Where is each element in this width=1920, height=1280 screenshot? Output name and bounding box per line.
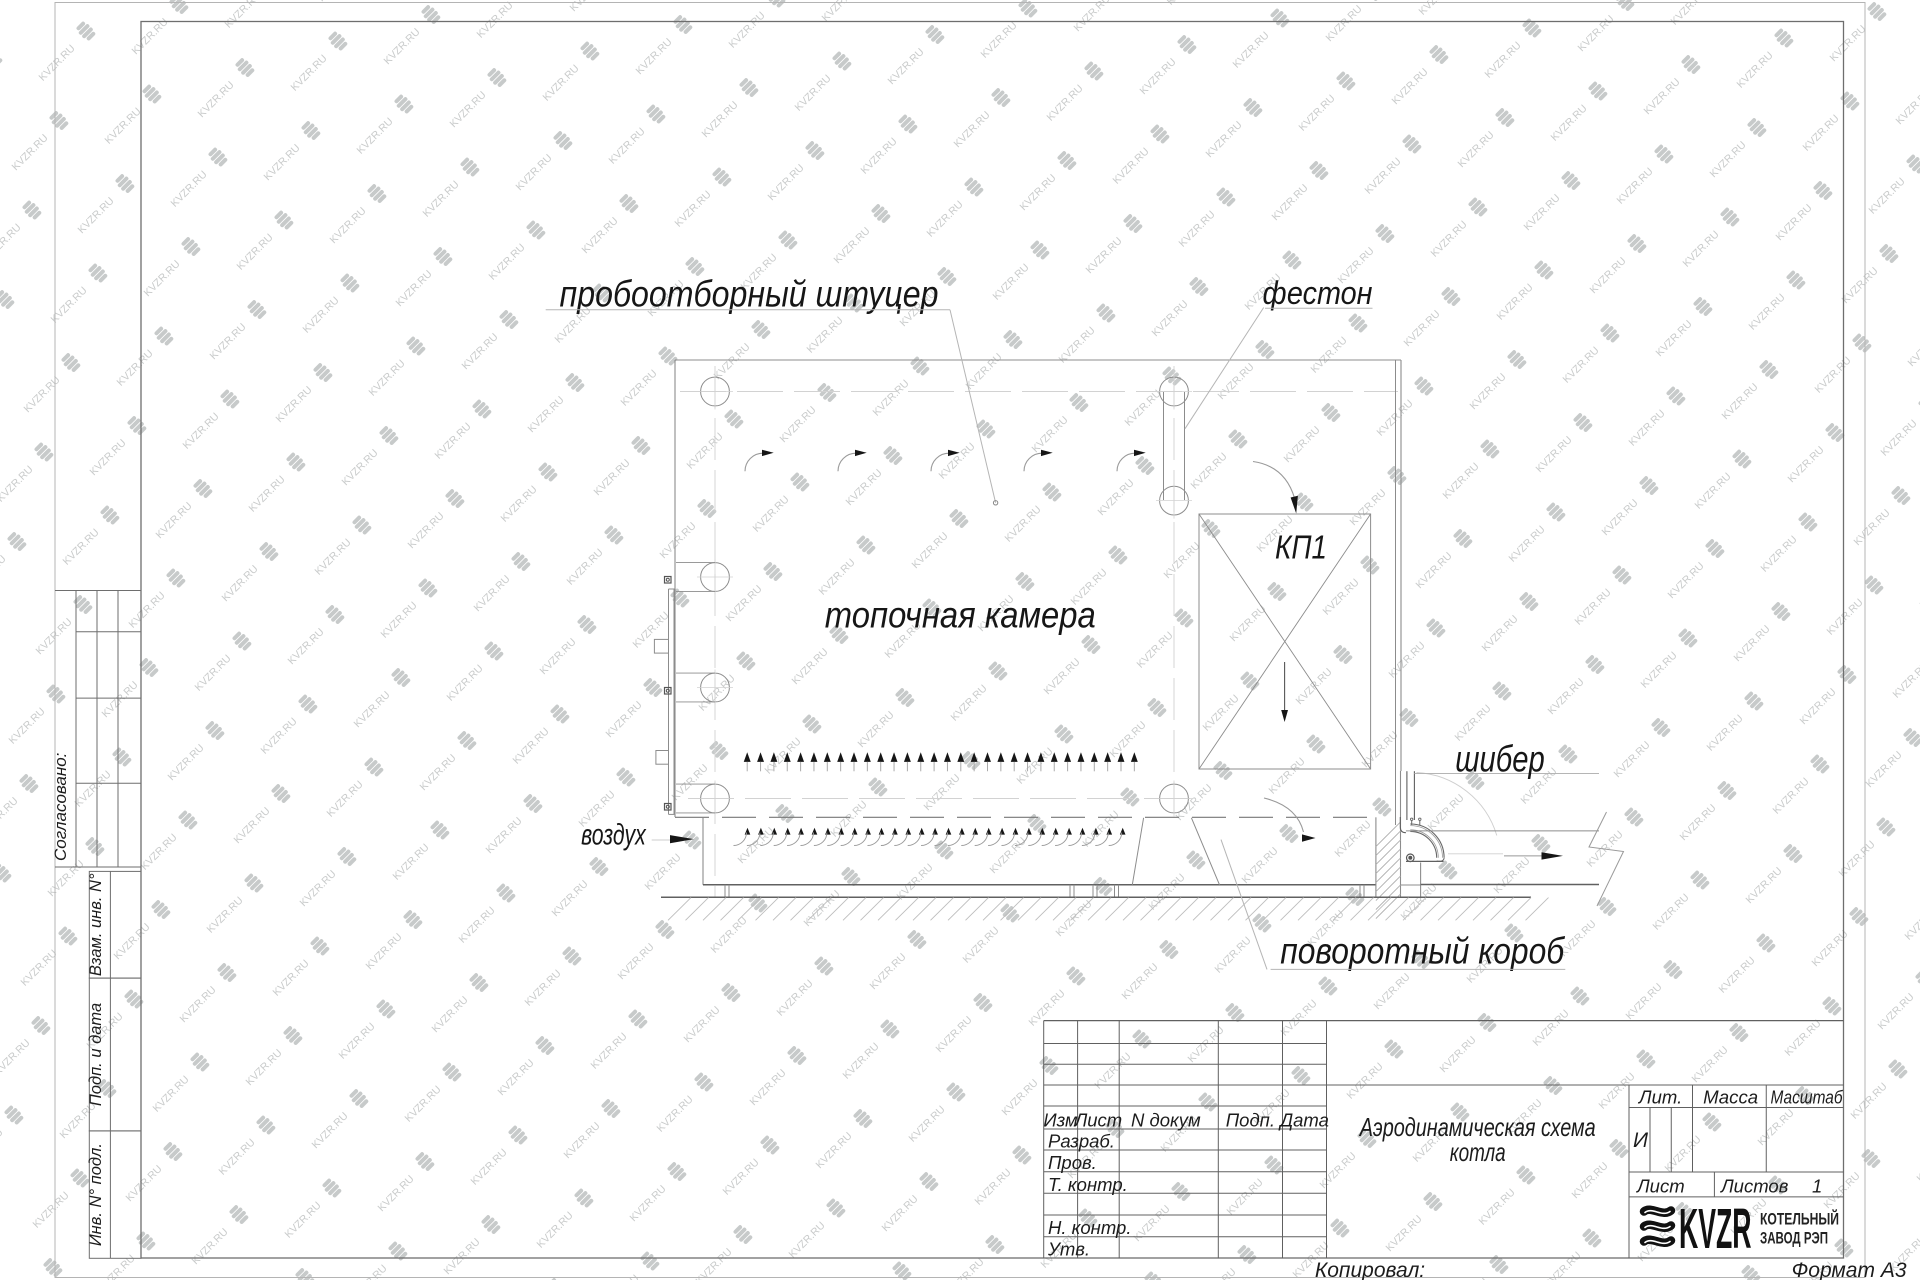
svg-text:Инв. N° подл.: Инв. N° подл. — [87, 1143, 105, 1246]
svg-text:воздух: воздух — [581, 818, 646, 851]
svg-text:Дата: Дата — [1278, 1110, 1329, 1131]
svg-text:Разраб.: Разраб. — [1048, 1131, 1115, 1152]
svg-text:И: И — [1633, 1129, 1649, 1152]
svg-text:Утв.: Утв. — [1047, 1239, 1090, 1260]
svg-text:1: 1 — [1812, 1176, 1822, 1197]
svg-text:шибер: шибер — [1455, 738, 1544, 780]
svg-text:фестон: фестон — [1263, 275, 1373, 311]
svg-text:котла: котла — [1450, 1137, 1506, 1167]
svg-text:Масса: Масса — [1703, 1087, 1758, 1108]
svg-text:ЗАВОД РЭП: ЗАВОД РЭП — [1760, 1230, 1828, 1248]
svg-text:Согласовано:: Согласовано: — [51, 752, 70, 861]
svg-text:KVZR: KVZR — [1679, 1197, 1752, 1261]
svg-text:Пров.: Пров. — [1048, 1152, 1097, 1173]
svg-text:Лист: Лист — [1636, 1176, 1685, 1197]
svg-text:топочная камера: топочная камера — [825, 594, 1096, 636]
svg-text:КП1: КП1 — [1275, 529, 1327, 566]
svg-text:пробоотборный штуцер: пробоотборный штуцер — [560, 273, 939, 315]
svg-text:Масштаб: Масштаб — [1771, 1087, 1843, 1108]
svg-text:N докум: N докум — [1131, 1110, 1201, 1131]
svg-text:поворотный короб: поворотный короб — [1280, 929, 1566, 971]
svg-text:Н. контр.: Н. контр. — [1048, 1217, 1131, 1238]
svg-text:Листов: Листов — [1720, 1176, 1789, 1197]
svg-text:Подп. и дата: Подп. и дата — [87, 1003, 105, 1106]
svg-text:Лист: Лист — [1074, 1110, 1123, 1131]
svg-text:Т. контр.: Т. контр. — [1048, 1174, 1128, 1195]
svg-text:Взам. инв. N°: Взам. инв. N° — [87, 873, 105, 976]
svg-text:Изм: Изм — [1043, 1110, 1078, 1131]
svg-text:КОТЕЛЬНЫЙ: КОТЕЛЬНЫЙ — [1760, 1210, 1839, 1229]
svg-text:Копировал:: Копировал: — [1315, 1259, 1425, 1280]
svg-text:Подп.: Подп. — [1226, 1110, 1275, 1131]
svg-text:Формат А3: Формат А3 — [1792, 1259, 1907, 1280]
svg-text:Лит.: Лит. — [1638, 1087, 1682, 1108]
